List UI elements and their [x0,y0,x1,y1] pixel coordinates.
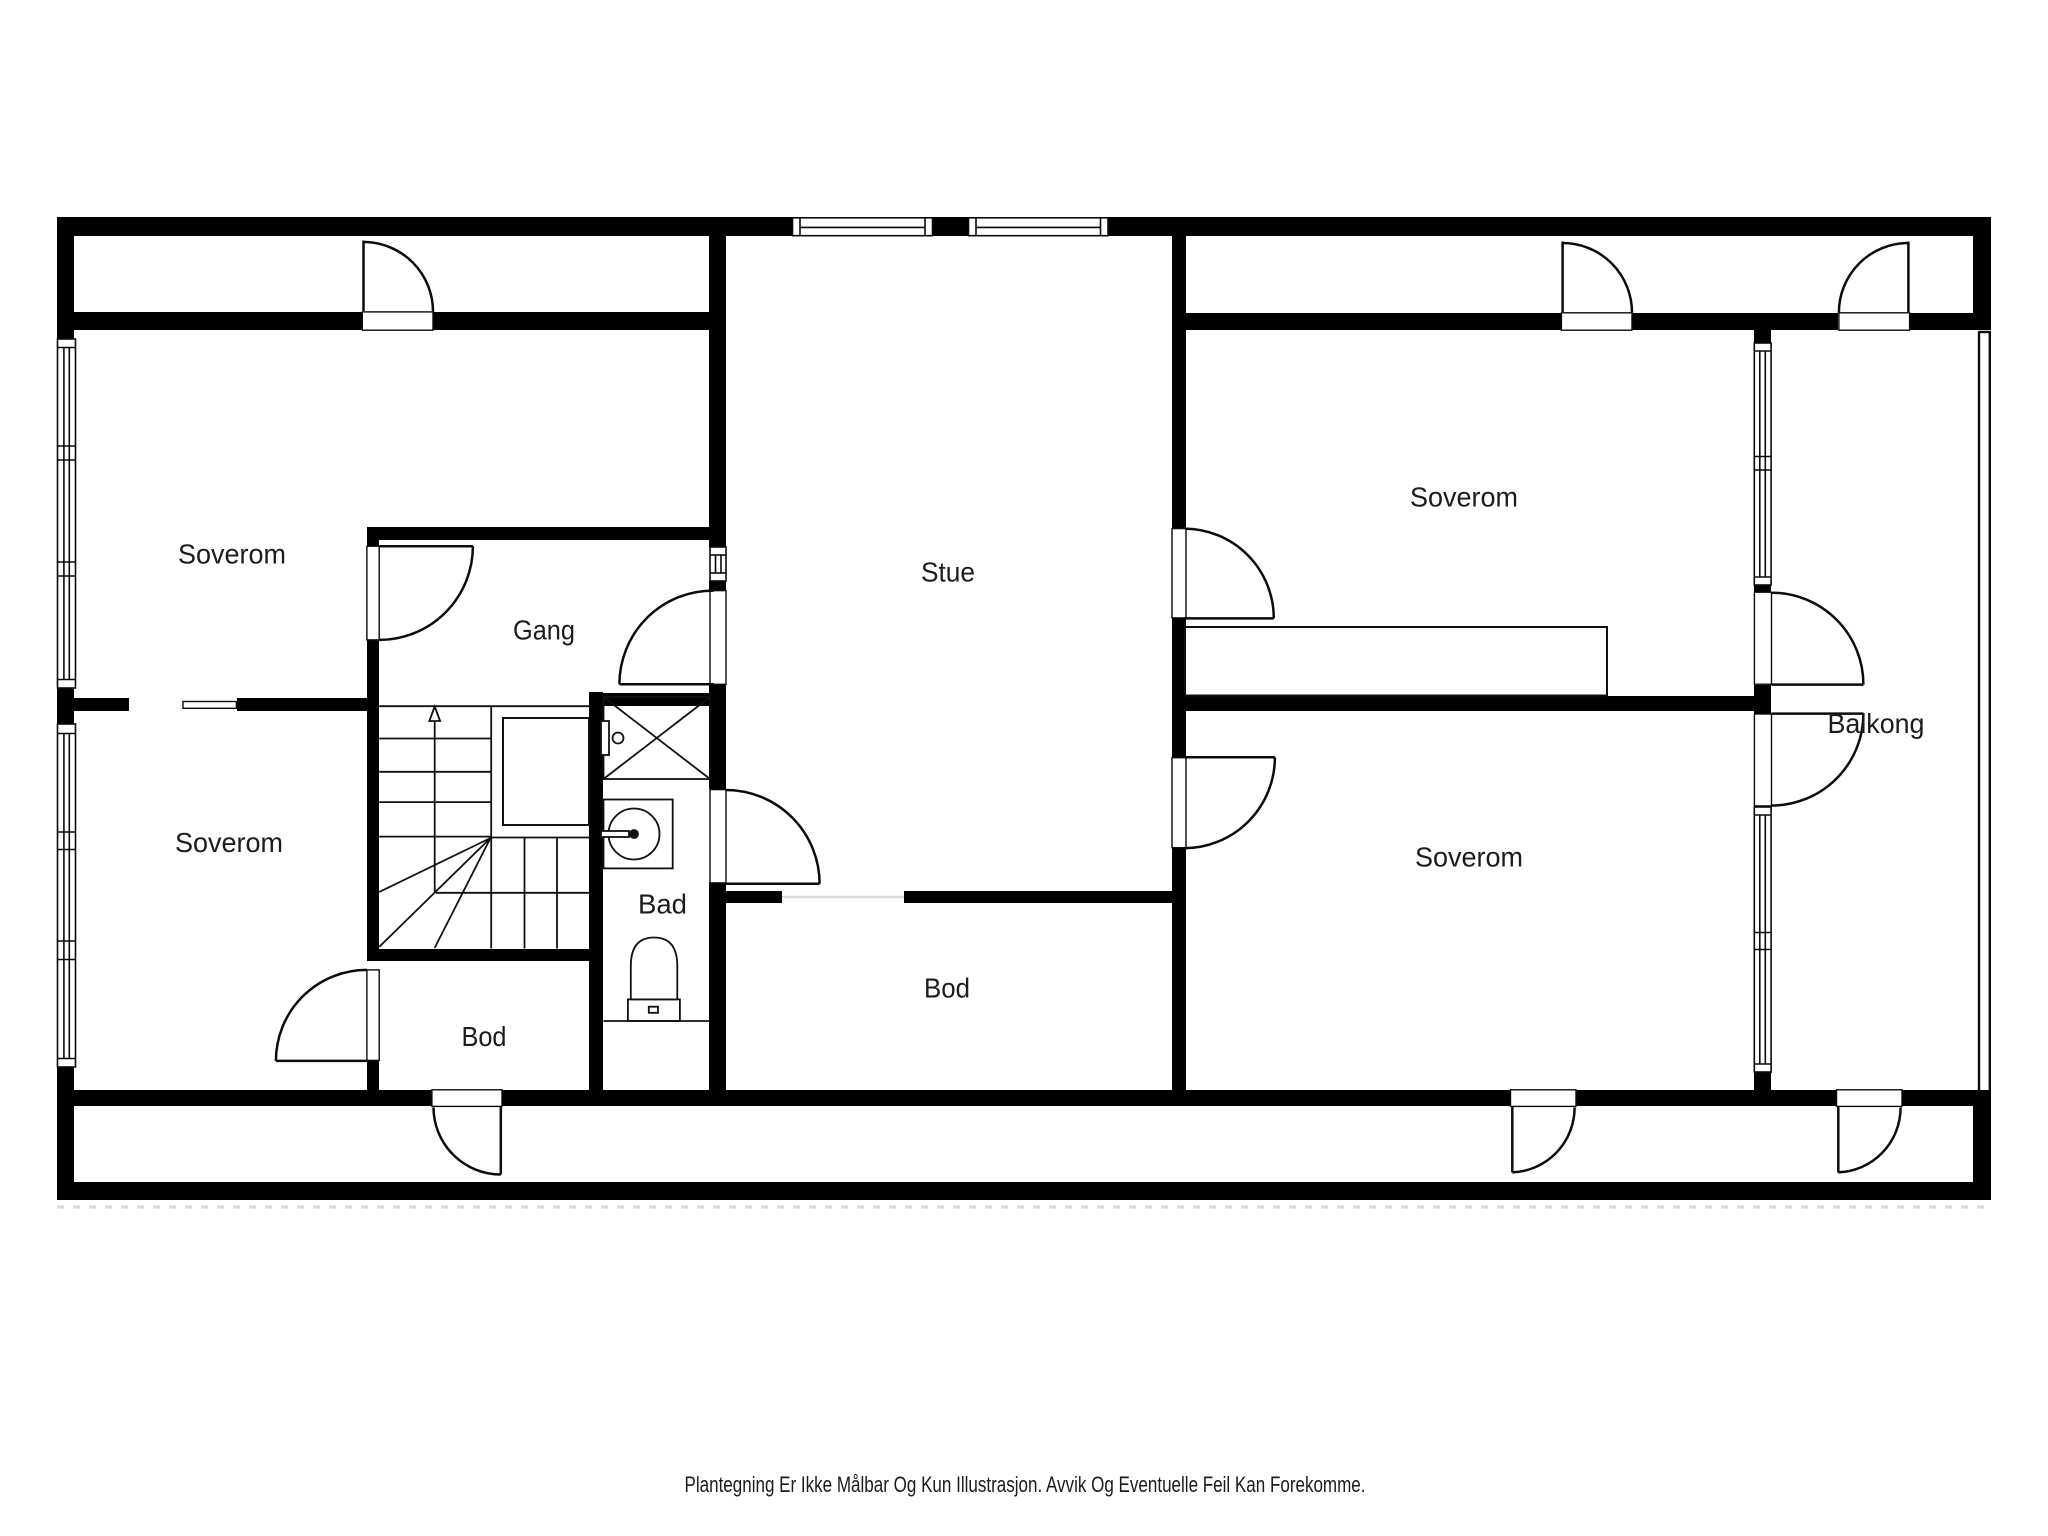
svg-text:Bad: Bad [638,889,687,920]
svg-text:Soverom: Soverom [1410,482,1518,513]
svg-text:Soverom: Soverom [175,827,283,858]
svg-text:Bod: Bod [462,1021,507,1052]
svg-text:Soverom: Soverom [1415,842,1523,873]
svg-text:Gang: Gang [513,615,575,646]
svg-text:Soverom: Soverom [178,539,286,570]
svg-text:Bod: Bod [924,973,970,1004]
svg-text:Balkong: Balkong [1828,708,1925,739]
svg-text:Stue: Stue [921,556,975,587]
svg-text:Plantegning Er Ikke Målbar Og: Plantegning Er Ikke Målbar Og Kun Illust… [685,1472,1366,1497]
